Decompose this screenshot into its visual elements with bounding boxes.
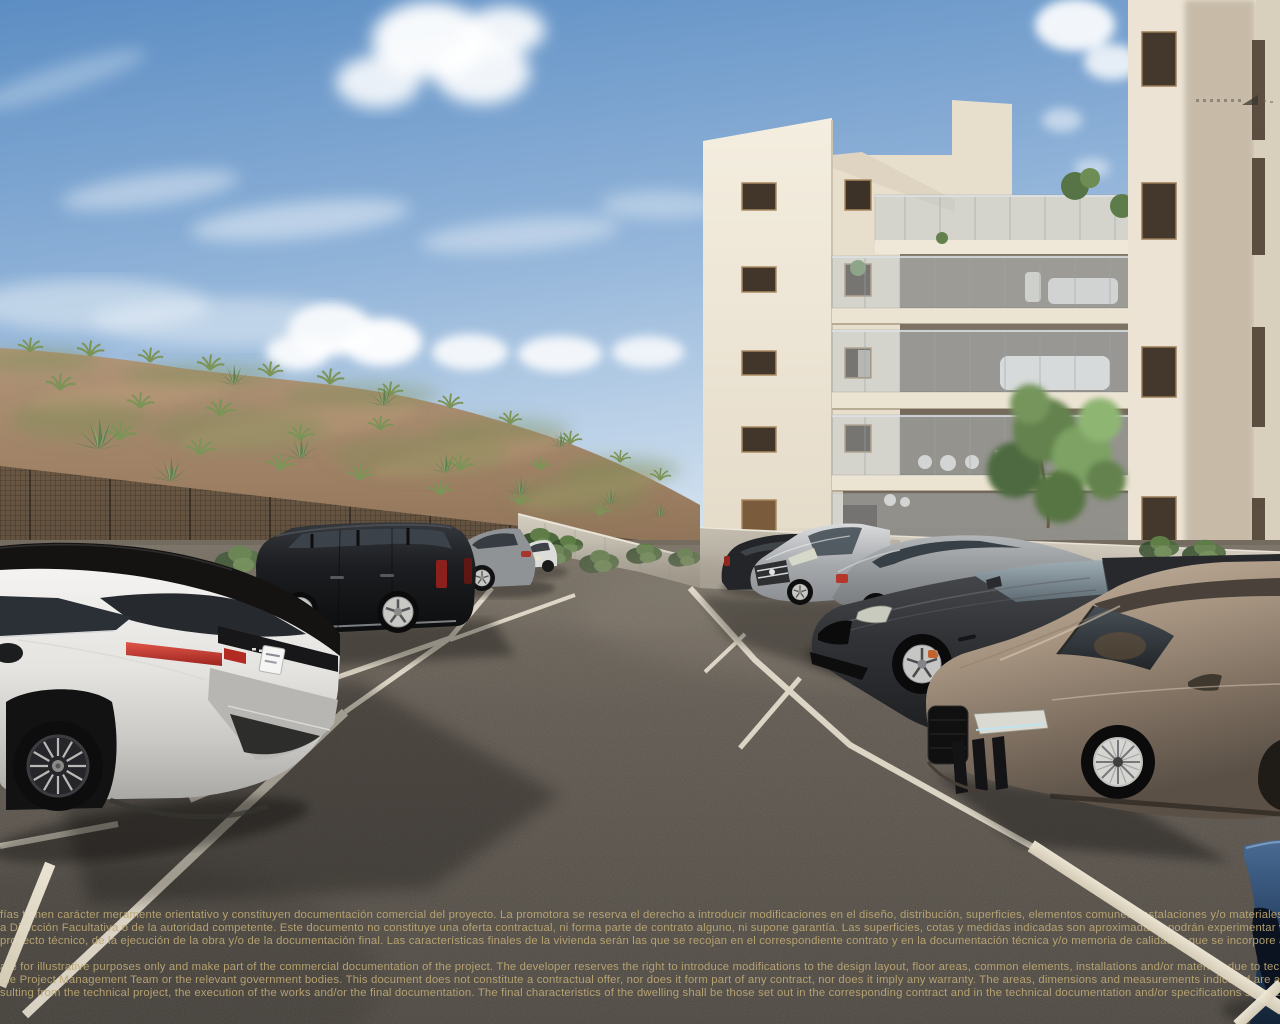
- architectural-render: fías tienen carácter meramente orientati…: [0, 0, 1280, 1024]
- disclaimer-es-line2: a Dirección Facultativa o de la autorida…: [0, 922, 1280, 935]
- disclaimer-en-line1: are for illustrative purposes only and m…: [0, 961, 1280, 974]
- building-right: [1128, 0, 1280, 560]
- disclaimer-es-line3: proyecto técnico, de la ejecución de la …: [0, 935, 1280, 948]
- disclaimer-en-line3: sulting from the technical project, the …: [0, 987, 1280, 1000]
- disclaimer-english: are for illustrative purposes only and m…: [0, 961, 1280, 1000]
- disclaimer-en-line2: the Project Management Team or the relev…: [0, 974, 1280, 987]
- disclaimer-spanish: fías tienen carácter meramente orientati…: [0, 909, 1280, 948]
- disclaimer-es-line1: fías tienen carácter meramente orientati…: [0, 909, 1280, 922]
- scene-svg: [0, 0, 1280, 1024]
